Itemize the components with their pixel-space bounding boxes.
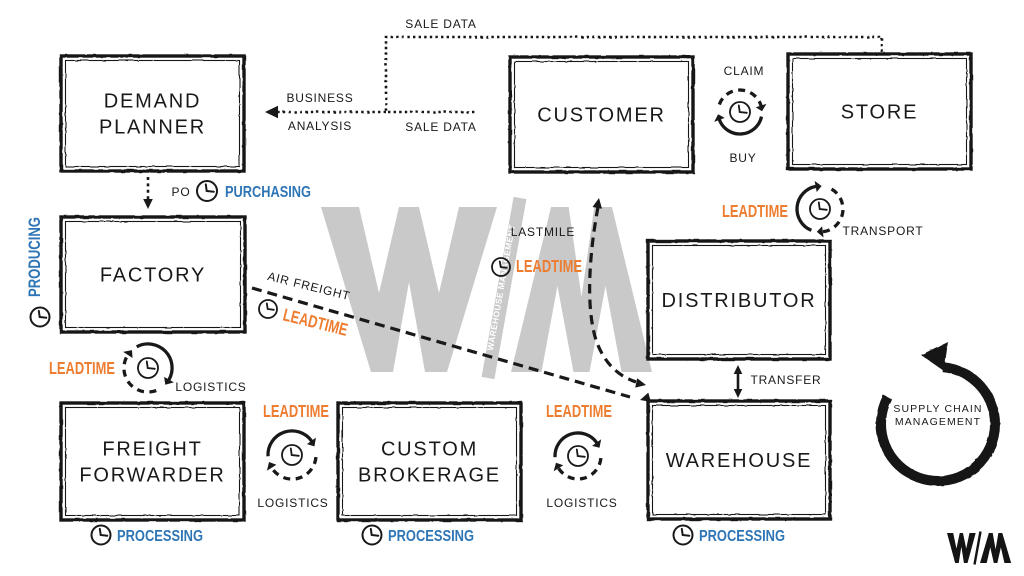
- svg-text:LEADTIME: LEADTIME: [49, 358, 115, 378]
- svg-text:LOGISTICS: LOGISTICS: [546, 496, 617, 510]
- svg-text:LEADTIME: LEADTIME: [546, 401, 612, 421]
- svg-text:PROCESSING: PROCESSING: [388, 528, 474, 545]
- svg-text:PURCHASING: PURCHASING: [225, 184, 311, 201]
- svg-text:TRANSPORT: TRANSPORT: [843, 224, 924, 238]
- svg-text:SALE DATA: SALE DATA: [405, 120, 476, 134]
- svg-text:LASTMILE: LASTMILE: [511, 225, 575, 239]
- svg-text:LEADTIME: LEADTIME: [263, 401, 329, 421]
- svg-text:LEADTIME: LEADTIME: [516, 256, 582, 276]
- svg-text:PRODUCING: PRODUCING: [25, 217, 44, 297]
- svg-text:LOGISTICS: LOGISTICS: [257, 496, 328, 510]
- svg-text:TRANSFER: TRANSFER: [750, 373, 821, 387]
- svg-text:SALE DATA: SALE DATA: [405, 17, 476, 31]
- svg-text:PO: PO: [172, 185, 191, 199]
- svg-text:CLAIM: CLAIM: [724, 64, 765, 78]
- svg-text:FACTORY: FACTORY: [100, 265, 206, 287]
- svg-text:BUY: BUY: [729, 151, 756, 165]
- svg-text:PROCESSING: PROCESSING: [117, 528, 203, 545]
- svg-text:ANALYSIS: ANALYSIS: [288, 119, 352, 133]
- svg-text:PROCESSING: PROCESSING: [699, 528, 785, 545]
- svg-text:LOGISTICS: LOGISTICS: [175, 380, 246, 394]
- svg-text:STORE: STORE: [841, 102, 919, 124]
- svg-text:MANAGEMENT: MANAGEMENT: [895, 416, 981, 428]
- svg-text:DISTRIBUTOR: DISTRIBUTOR: [662, 290, 817, 312]
- svg-text:LEADTIME: LEADTIME: [722, 201, 788, 221]
- svg-text:CUSTOMER: CUSTOMER: [537, 105, 665, 127]
- svg-text:BUSINESS: BUSINESS: [286, 91, 353, 105]
- svg-text:WAREHOUSE: WAREHOUSE: [666, 450, 813, 472]
- svg-text:SUPPLY CHAIN: SUPPLY CHAIN: [893, 403, 982, 415]
